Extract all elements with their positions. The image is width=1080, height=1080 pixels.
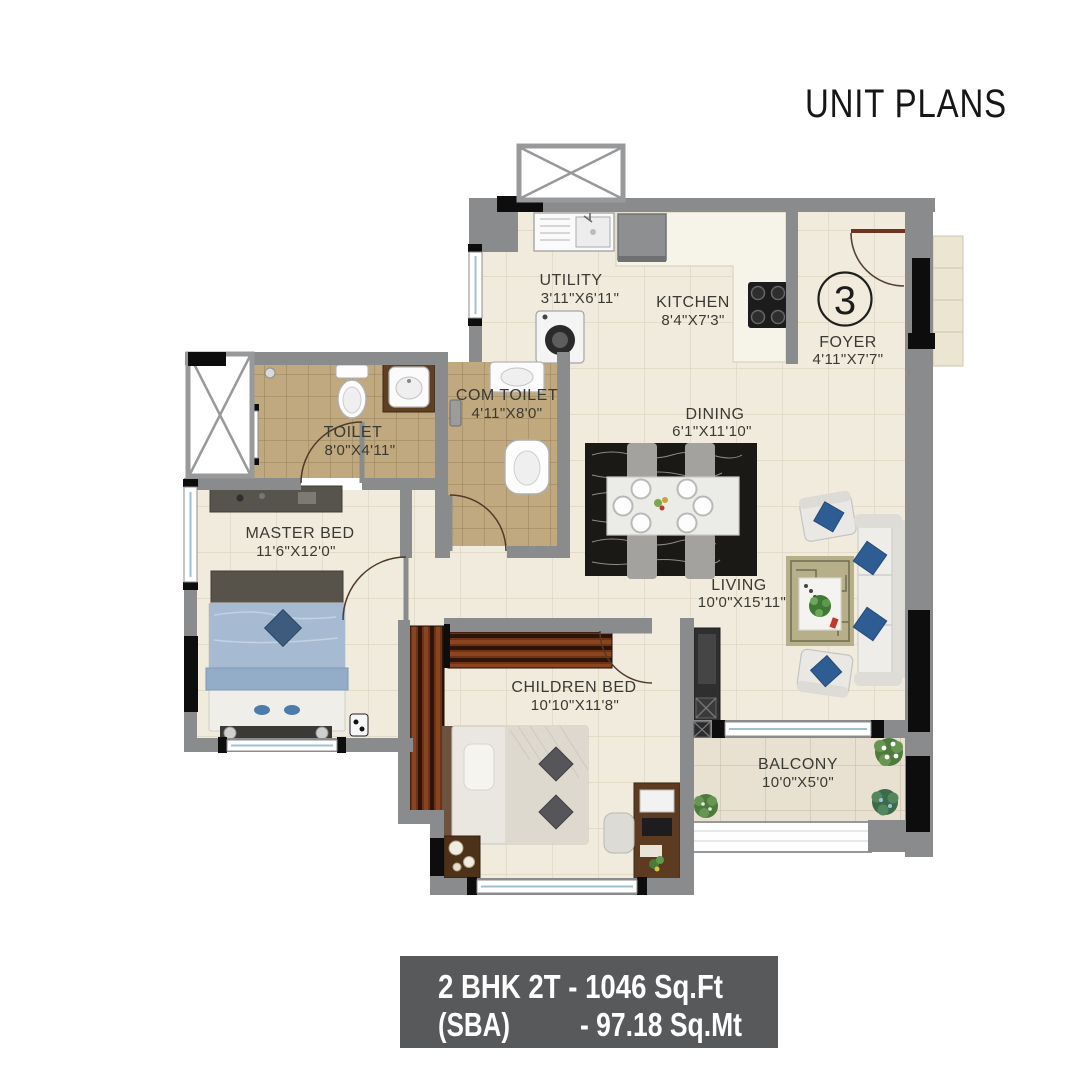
room-dims: 10'0"X5'0"	[762, 774, 834, 791]
dining-set	[585, 443, 757, 579]
duct-box-icon	[694, 722, 710, 737]
window	[467, 877, 647, 895]
room-dims: 10'0"X15'11"	[698, 594, 786, 611]
room-name: DINING	[686, 406, 745, 423]
room-dims: 8'0"X4'11"	[325, 442, 396, 459]
label-balcony: BALCONY 10'0"X5'0"	[758, 756, 838, 791]
room-dims: 3'11"X6'11"	[541, 290, 620, 307]
room-dims: 11'6"X12'0"	[256, 543, 336, 560]
wardrobe	[410, 626, 444, 816]
wardrobe	[448, 632, 612, 668]
balcony-railing	[688, 822, 871, 852]
window	[183, 479, 198, 590]
window	[468, 244, 482, 326]
study-desk	[634, 783, 680, 883]
page-title: UNIT PLANS	[805, 82, 1007, 126]
room-name: UTILITY	[539, 272, 602, 289]
room-name: CHILDREN BED	[511, 679, 636, 696]
room-dims: 6'1"X11'10"	[672, 423, 752, 440]
pet-mat-icon	[350, 714, 368, 736]
shaft-box	[519, 146, 623, 200]
com-wc-icon	[505, 440, 549, 494]
nightstand	[444, 836, 480, 878]
kitchen-cabinet	[618, 214, 666, 260]
dining-chair	[685, 533, 715, 579]
unit-number: 3	[834, 279, 856, 323]
room-dims: 8'4"X7'3"	[661, 312, 724, 329]
room-dims: 4'11"X7'7"	[813, 351, 884, 368]
room-dims: 4'11"X8'0"	[472, 405, 543, 422]
armchair	[796, 649, 853, 699]
children-bed	[442, 726, 588, 844]
stove-icon	[748, 282, 788, 328]
plant-icon	[694, 794, 718, 818]
room-name: KITCHEN	[656, 294, 730, 311]
room-name: LIVING	[711, 577, 766, 594]
unit-plan-page: UTILITY 3'11"X6'11" KITCHEN 8'4"X7'3" 3 …	[0, 0, 1080, 1080]
banner-line2-right: - 97.18 Sq.Mt	[580, 1006, 742, 1043]
banner-line1: 2 BHK 2T - 1046 Sq.Ft	[438, 968, 723, 1005]
window	[712, 720, 884, 738]
sofa	[853, 514, 906, 686]
room-name: TOILET	[324, 424, 383, 441]
room-name: FOYER	[819, 334, 877, 351]
desk-chair	[604, 813, 634, 853]
coffee-table	[799, 578, 841, 630]
room-name: MASTER BED	[245, 525, 354, 542]
wc-icon	[336, 365, 368, 418]
dining-chair	[627, 533, 657, 579]
room-name: BALCONY	[758, 756, 838, 773]
master-bed	[206, 571, 348, 740]
utility-sink-icon	[534, 213, 614, 251]
room-name: COM TOILET	[456, 387, 558, 404]
floor-plan-canvas: UTILITY 3'11"X6'11" KITCHEN 8'4"X7'3" 3 …	[0, 0, 1080, 1080]
tv-unit	[694, 628, 720, 724]
info-banner: 2 BHK 2T - 1046 Sq.Ft (SBA) - 97.18 Sq.M…	[400, 956, 778, 1048]
banner-line2-left: (SBA)	[438, 1006, 510, 1043]
shaft-box	[188, 352, 252, 476]
label-kitchen: KITCHEN 8'4"X7'3"	[656, 294, 730, 329]
armchair	[798, 490, 857, 542]
label-children-bed: CHILDREN BED 10'10"X11'8"	[511, 679, 636, 714]
shower-icon	[265, 368, 275, 378]
room-dims: 10'10"X11'8"	[531, 697, 619, 714]
foyer-ledge	[933, 236, 963, 366]
